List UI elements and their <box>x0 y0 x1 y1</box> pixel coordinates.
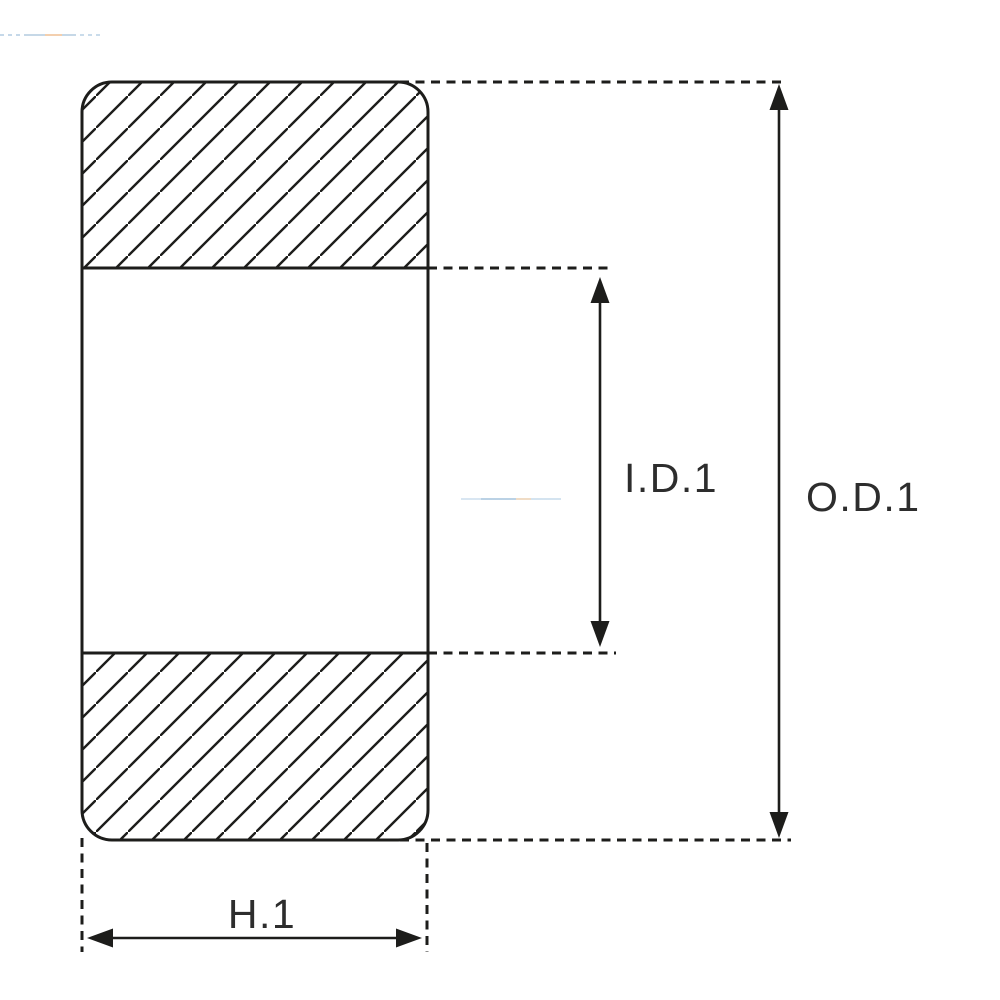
id-label: I.D.1 <box>624 455 718 501</box>
arrow-up-icon <box>770 84 789 110</box>
arrow-down-icon <box>770 812 789 838</box>
arrow-up-icon <box>591 277 610 303</box>
od-label: O.D.1 <box>806 474 921 520</box>
id-dimension: I.D.1 <box>591 277 719 647</box>
h-label: H.1 <box>228 891 296 937</box>
bearing-cross-section <box>82 82 428 840</box>
h-dimension: H.1 <box>87 891 422 948</box>
hatch-band-top <box>82 82 428 268</box>
arrow-left-icon <box>87 929 113 948</box>
arrow-down-icon <box>591 621 610 647</box>
bearing-dimension-diagram: O.D.1 I.D.1 H.1 <box>0 0 1000 1000</box>
arrow-right-icon <box>396 929 422 948</box>
technical-drawing: O.D.1 I.D.1 H.1 <box>0 0 1000 1000</box>
hatch-band-bottom <box>82 653 428 840</box>
od-dimension: O.D.1 <box>770 84 921 838</box>
